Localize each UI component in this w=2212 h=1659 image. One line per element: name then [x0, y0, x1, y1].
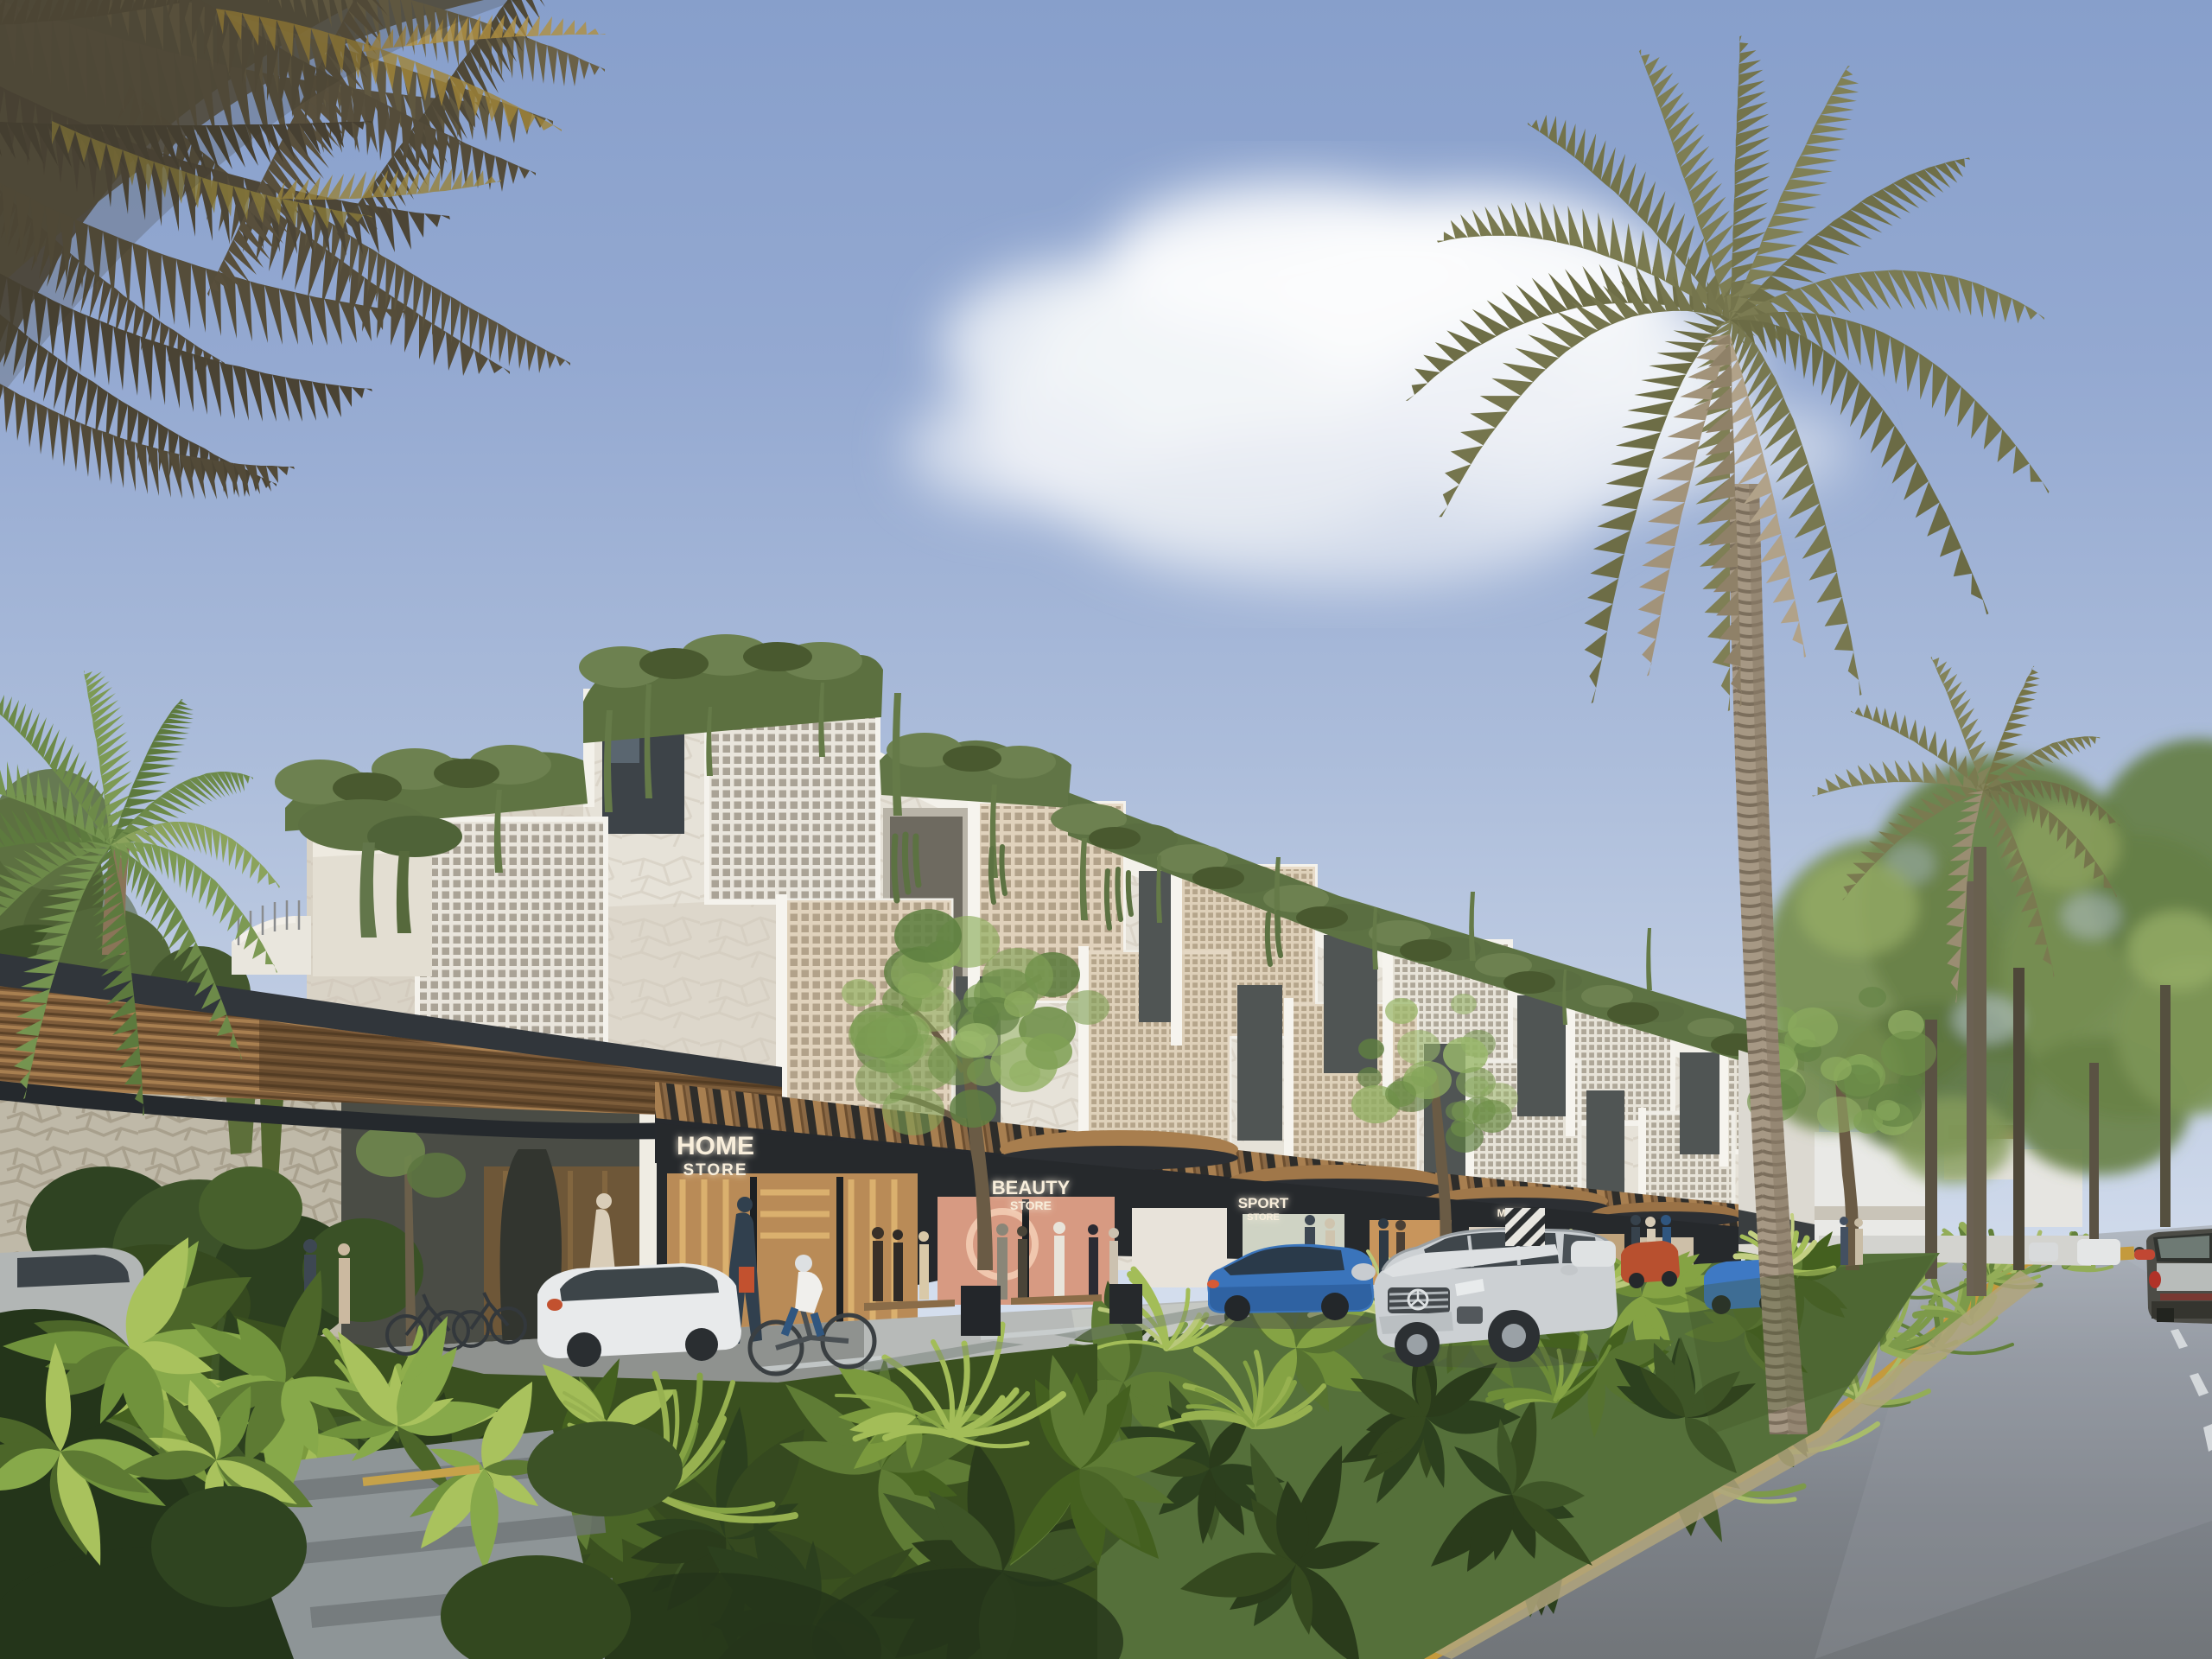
svg-text:STORE: STORE — [1010, 1198, 1052, 1212]
svg-text:BEAUTY: BEAUTY — [992, 1177, 1071, 1198]
svg-text:STORE: STORE — [683, 1161, 747, 1179]
svg-text:SPORT: SPORT — [1238, 1195, 1289, 1211]
svg-text:STORE: STORE — [1247, 1212, 1280, 1223]
svg-text:HOME: HOME — [677, 1132, 754, 1160]
